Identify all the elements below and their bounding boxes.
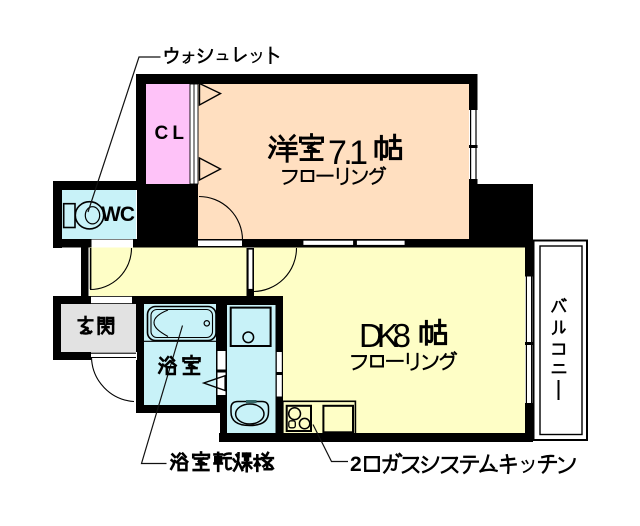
- svg-text:2: 2: [350, 453, 362, 476]
- svg-text:DK8: DK8: [359, 317, 411, 354]
- svg-text:7.1: 7.1: [328, 134, 368, 172]
- svg-text:WC: WC: [101, 203, 135, 226]
